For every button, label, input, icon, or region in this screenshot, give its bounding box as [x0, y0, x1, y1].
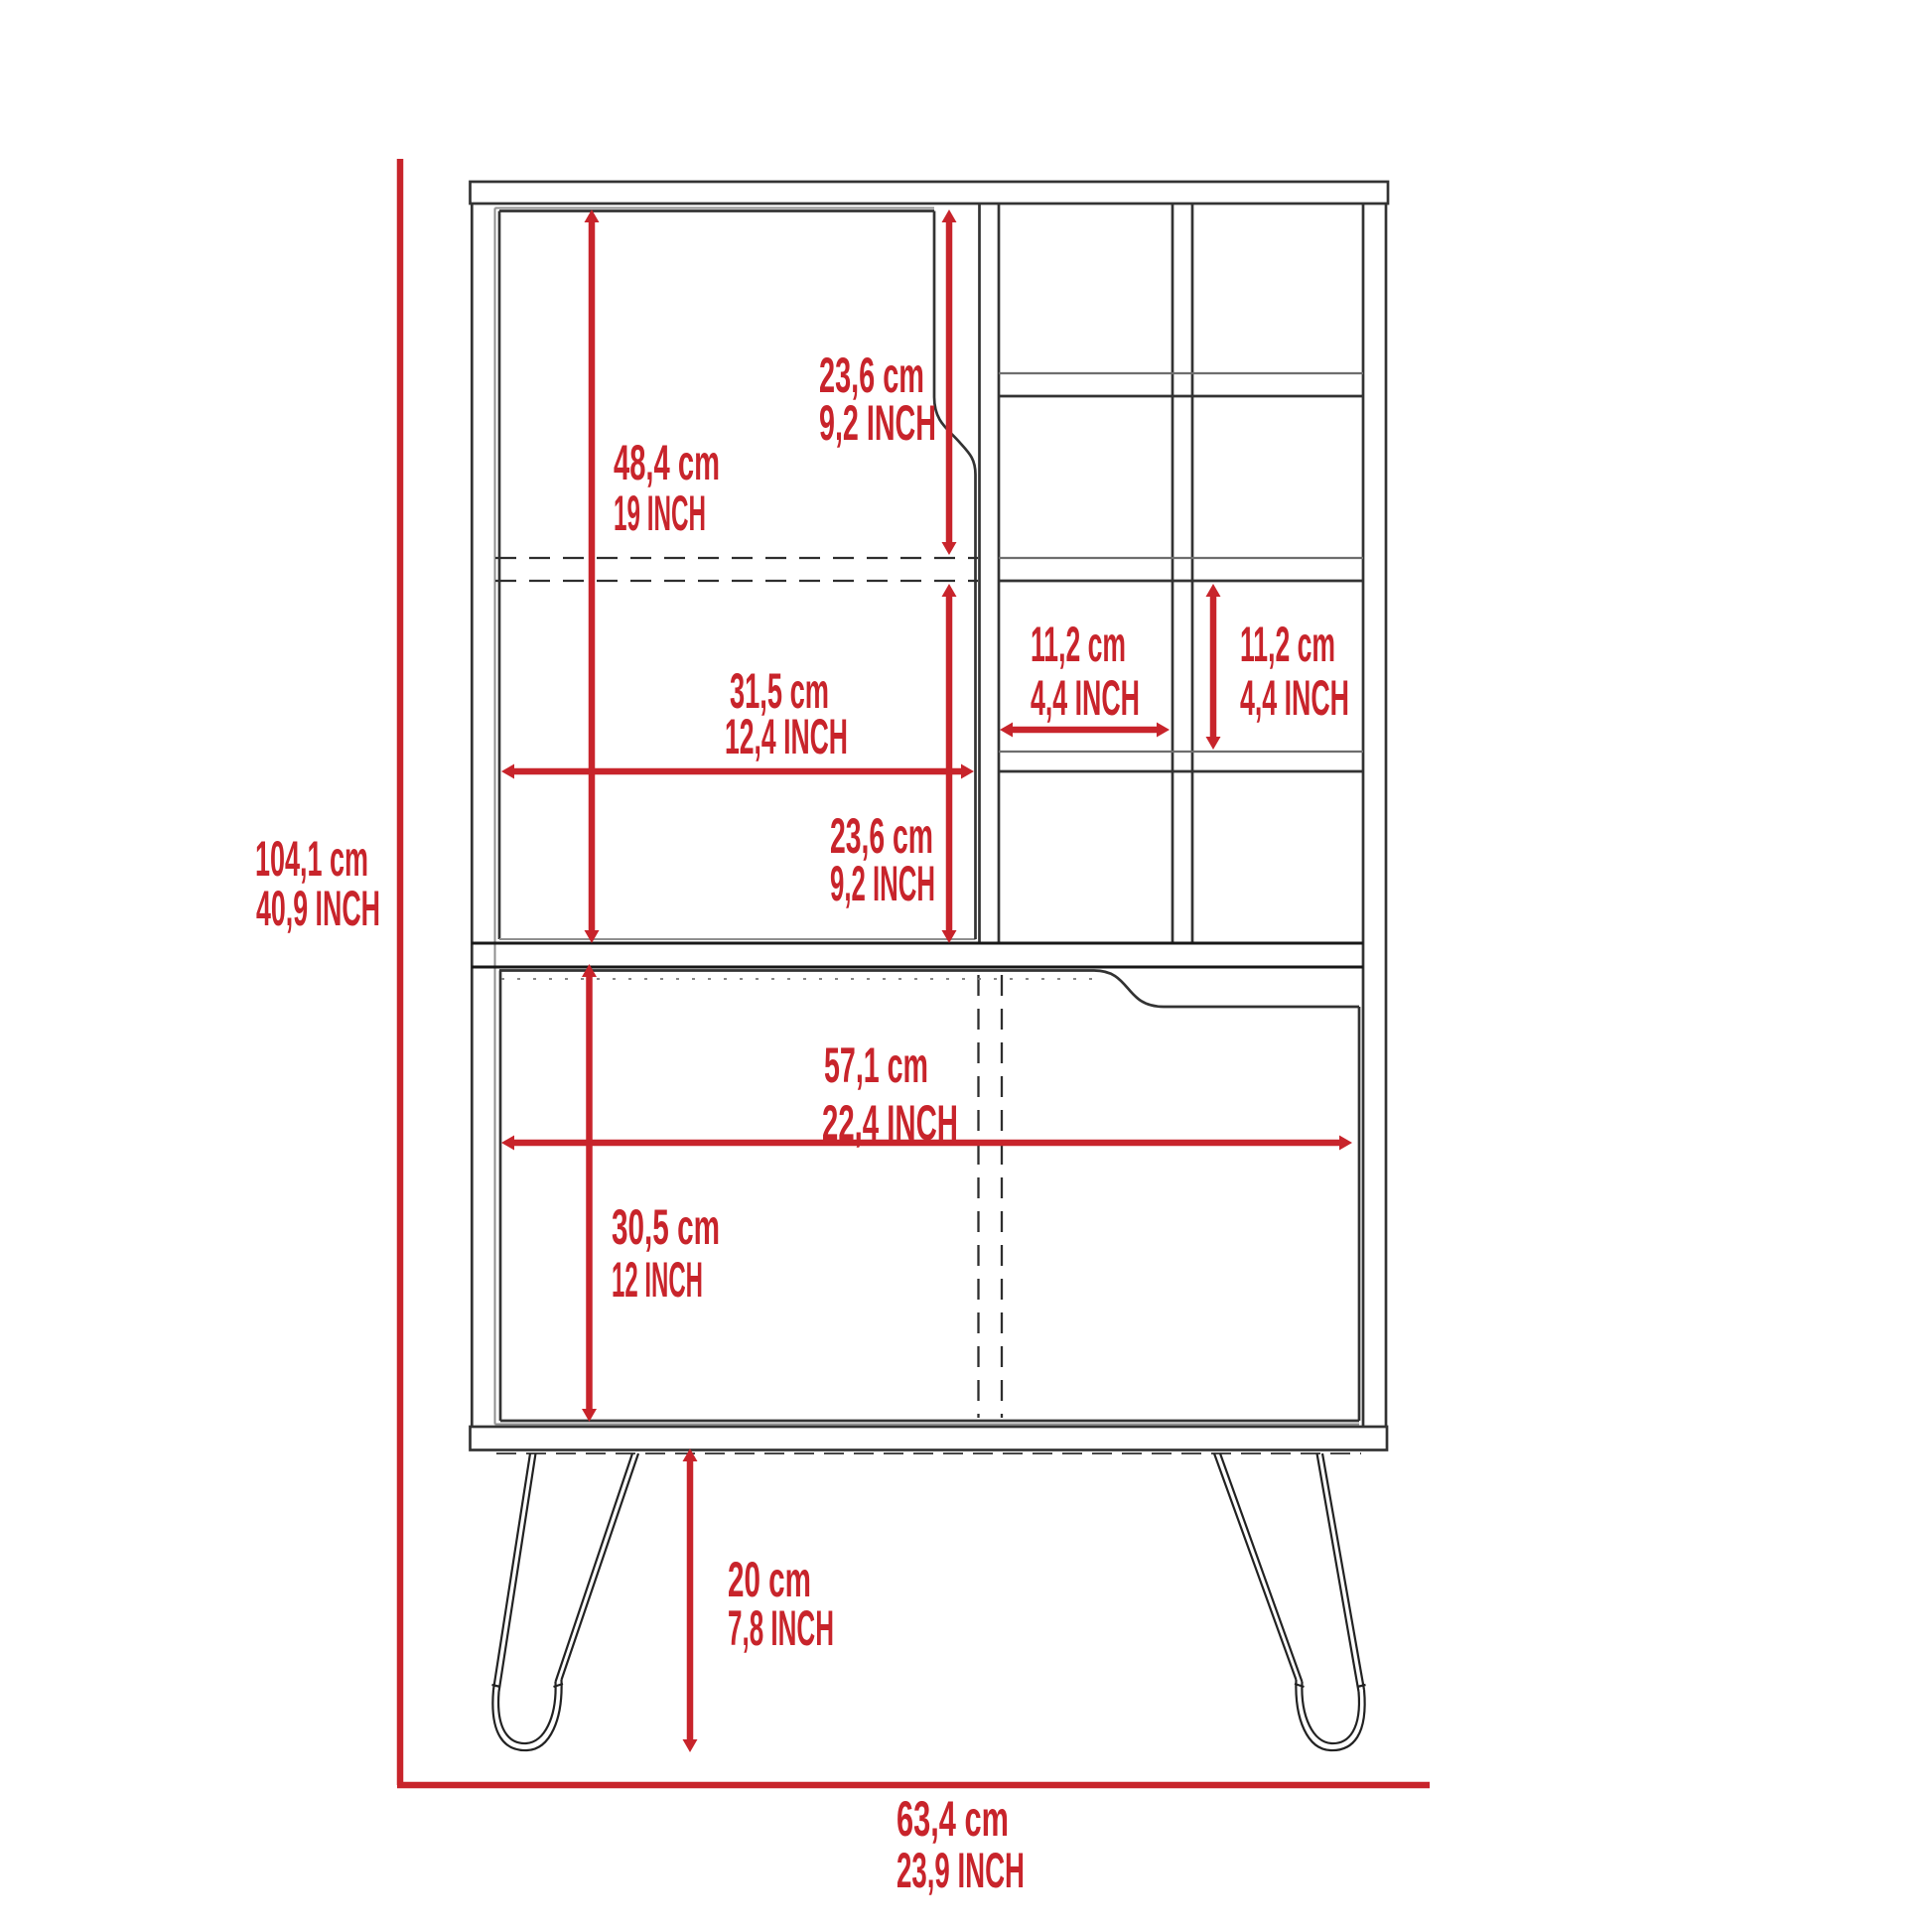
svg-text:12,4 INCH: 12,4 INCH [725, 709, 848, 764]
svg-text:4,4 INCH: 4,4 INCH [1031, 670, 1140, 726]
svg-text:19 INCH: 19 INCH [614, 485, 706, 541]
svg-text:9,2 INCH: 9,2 INCH [819, 395, 936, 451]
svg-text:48,4 cm: 48,4 cm [614, 435, 720, 490]
svg-text:20 cm: 20 cm [728, 1552, 811, 1607]
svg-text:57,1 cm: 57,1 cm [824, 1037, 928, 1093]
svg-text:11,2 cm: 11,2 cm [1240, 617, 1335, 672]
svg-text:9,2 INCH: 9,2 INCH [830, 856, 935, 911]
svg-text:12 INCH: 12 INCH [612, 1252, 703, 1308]
svg-text:30,5 cm: 30,5 cm [612, 1199, 720, 1255]
svg-text:63,4 cm: 63,4 cm [897, 1791, 1009, 1847]
svg-text:23,9 INCH: 23,9 INCH [897, 1843, 1025, 1898]
svg-text:7,8 INCH: 7,8 INCH [728, 1600, 834, 1656]
svg-text:11,2 cm: 11,2 cm [1031, 617, 1126, 672]
svg-text:22,4 INCH: 22,4 INCH [822, 1095, 958, 1151]
svg-text:40,9 INCH: 40,9 INCH [256, 881, 380, 936]
svg-text:4,4 INCH: 4,4 INCH [1240, 670, 1349, 726]
svg-text:104,1 cm: 104,1 cm [255, 831, 368, 887]
